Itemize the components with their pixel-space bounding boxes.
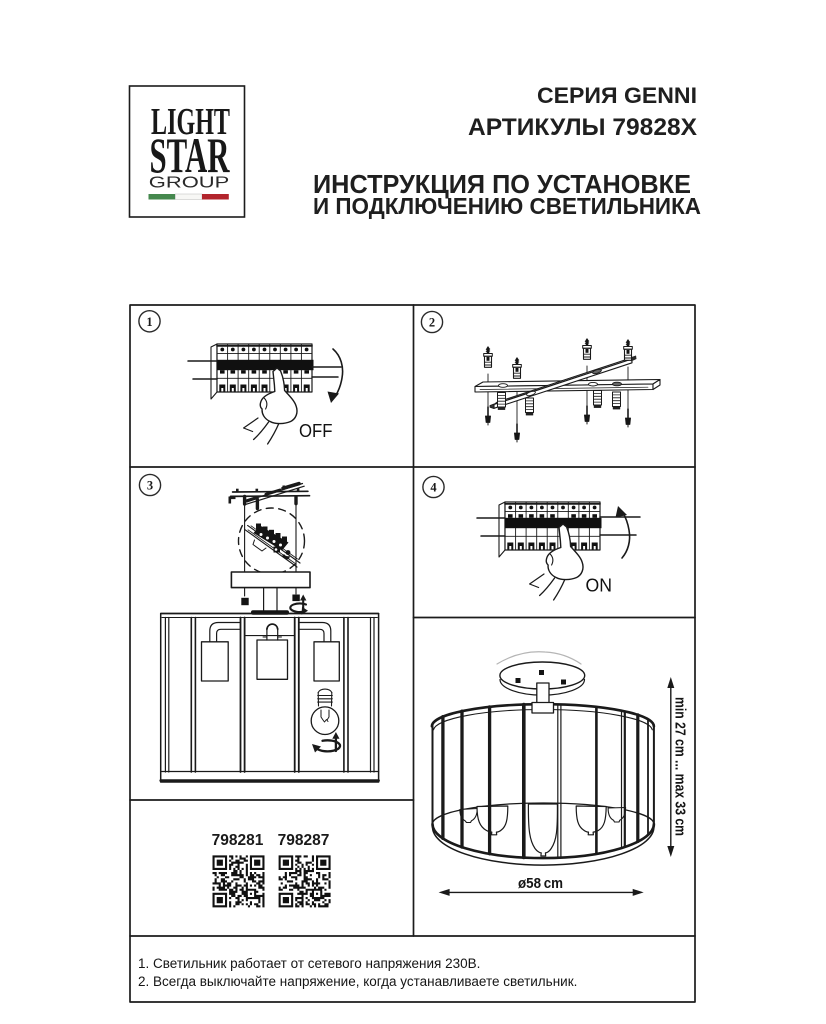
svg-text:1: 1 <box>146 315 152 329</box>
svg-text:4: 4 <box>430 481 437 495</box>
svg-text:OFF: OFF <box>299 420 333 441</box>
svg-text:ON: ON <box>586 576 613 596</box>
svg-text:ø58 cm: ø58 cm <box>518 875 563 892</box>
svg-text:min 27 cm ... max 33 cm: min 27 cm ... max 33 cm <box>672 697 688 836</box>
svg-text:3: 3 <box>147 479 153 493</box>
svg-text:2: 2 <box>429 316 435 330</box>
svg-text:798281: 798281 <box>212 832 264 849</box>
svg-text:798287: 798287 <box>278 832 330 849</box>
